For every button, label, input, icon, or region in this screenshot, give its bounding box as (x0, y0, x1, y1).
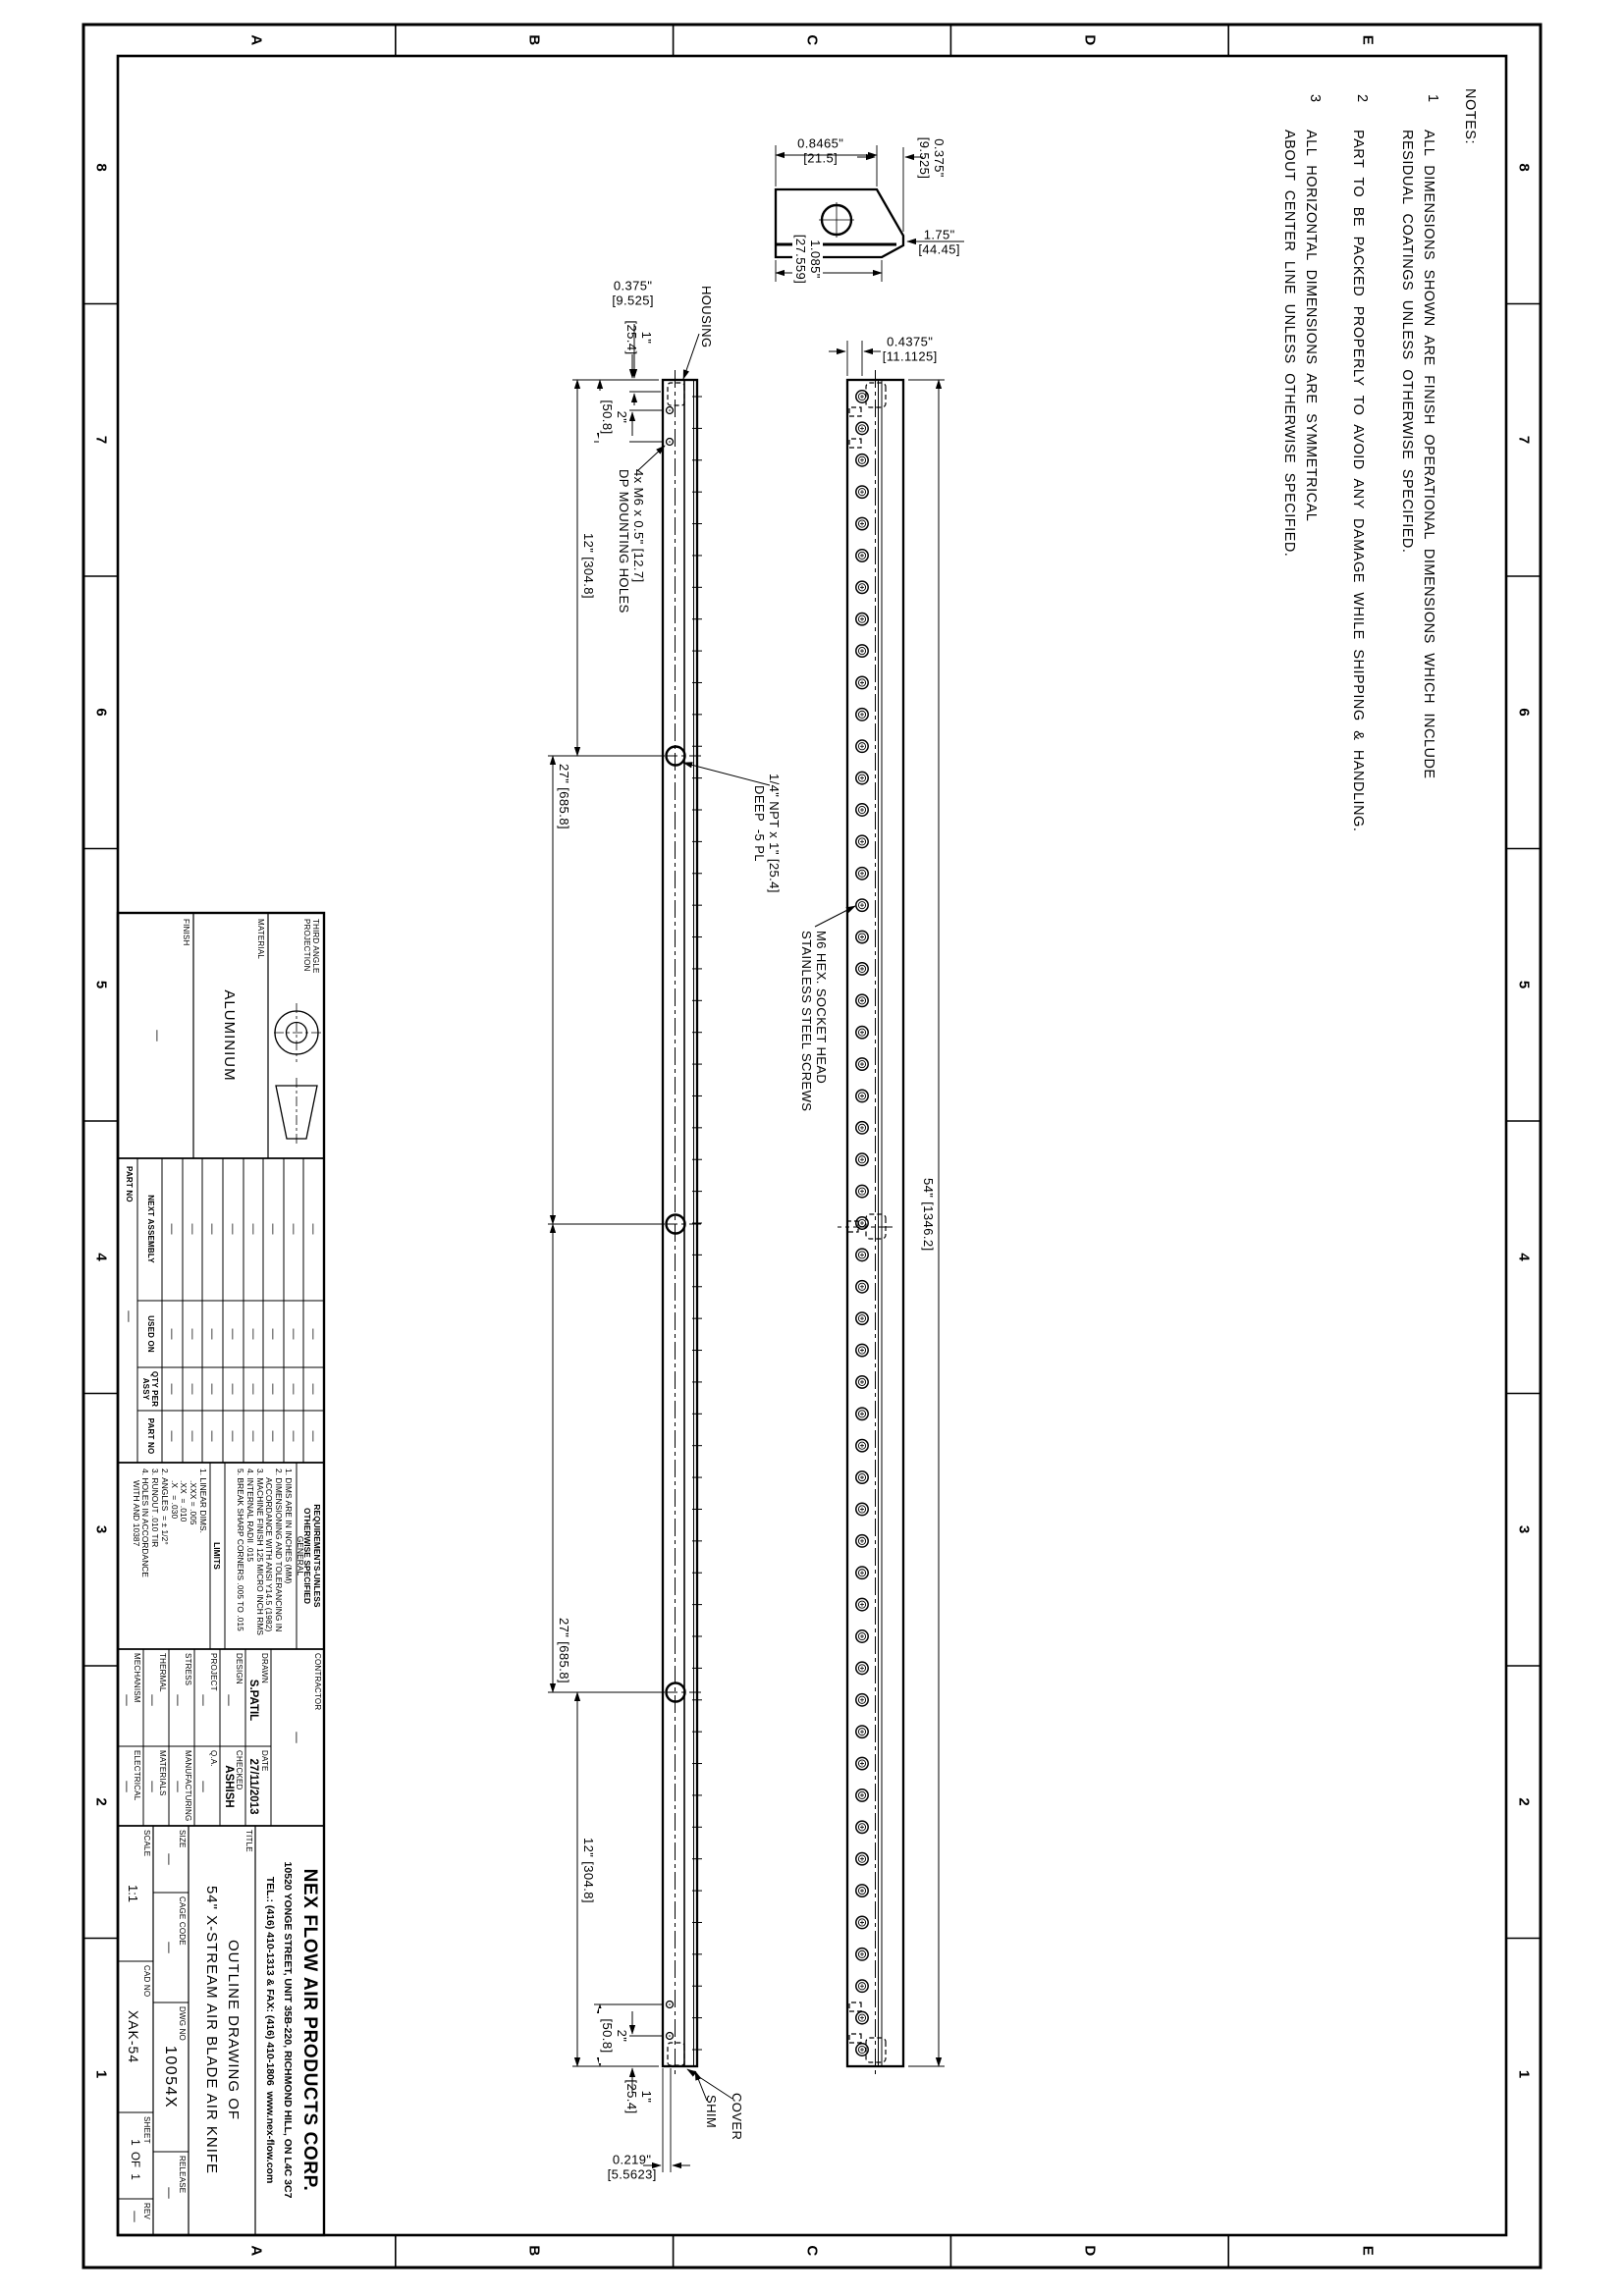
screw (856, 1852, 868, 1864)
screw (856, 1916, 868, 1928)
note-number: 2 (1355, 94, 1370, 103)
application-empty-cell: — (166, 1224, 178, 1235)
electrical-value: — (121, 1781, 133, 1792)
screw (856, 1090, 868, 1101)
design-label: DESIGN (234, 1653, 243, 1684)
landscape-drawing: NOTES: 1 ALL DIMENSIONS SHOWN ARE FINISH… (0, 0, 1624, 2296)
callout-housing: HOUSING (699, 286, 714, 347)
screw (856, 1439, 868, 1451)
application-empty-cell: — (187, 1431, 198, 1442)
date-value: 27/11/2013 (247, 1759, 259, 1815)
dim-hole-offset-1: 1" [25.4] (623, 2073, 654, 2120)
application-empty-cell: — (206, 1384, 218, 1395)
zone-number-bottom: 3 (93, 1525, 110, 1534)
application-empty-cell: — (206, 1224, 218, 1235)
application-empty-cell: — (187, 1329, 198, 1340)
manufacturing-value: — (172, 1781, 184, 1792)
screw (856, 1312, 868, 1324)
screw (856, 899, 868, 911)
callout-mounting-holes: 4x M6 x 0.5" [12.7] DP MOUNTING HOLES (616, 469, 646, 614)
note-number: 1 (1426, 94, 1440, 103)
material-value: ALUMINIUM (221, 989, 238, 1081)
zone-letter-right: C (804, 2245, 821, 2256)
finish-value: — (151, 1030, 163, 1041)
screw (856, 1058, 868, 1070)
screw (856, 1344, 868, 1356)
screw (856, 835, 868, 847)
screw (856, 1185, 868, 1197)
application-row-value: — (123, 1310, 135, 1322)
drawing-title-line1: OUTLINE DRAWING OF (225, 1940, 242, 2120)
side-view (644, 370, 702, 2076)
screw (856, 2011, 868, 2023)
size-label: SIZE (177, 1830, 186, 1848)
mechanism-value: — (121, 1694, 133, 1706)
zone-number-top: 2 (1516, 1797, 1533, 1806)
screw (856, 645, 868, 657)
dwg-no-value: 10054X (161, 2046, 179, 2109)
screw (856, 1408, 868, 1419)
screw (856, 1757, 868, 1769)
screw (856, 1026, 868, 1038)
screw (856, 1694, 868, 1706)
rev-value: — (129, 2211, 140, 2222)
dim-hole-offset-2: 2" [50.8] (599, 391, 629, 444)
dim-detail-body-height: 0.8465" [21.5] (782, 136, 860, 167)
screw (856, 517, 868, 529)
screw (856, 1598, 868, 1610)
screw (856, 931, 868, 942)
screw (856, 1567, 868, 1578)
qa-label: Q.A. (208, 1750, 217, 1767)
thermal-value: — (146, 1694, 158, 1706)
note-text: ALL HORIZONTAL DIMENSIONS ARE SYMMETRICA… (1278, 130, 1322, 557)
application-empty-cell: — (267, 1384, 279, 1395)
application-empty-cell: — (227, 1431, 239, 1442)
application-empty-cell: — (267, 1329, 279, 1340)
application-empty-cell: — (308, 1384, 320, 1395)
zone-number-top: 4 (1516, 1253, 1533, 1261)
application-empty-cell: — (288, 1431, 299, 1442)
zone-number-top: 5 (1516, 981, 1533, 989)
screw (856, 1122, 868, 1134)
zone-number-top: 6 (1516, 708, 1533, 717)
project-label: PROJECT (208, 1653, 217, 1691)
application-empty-cell: — (166, 1329, 178, 1340)
zone-letter-right: E (1359, 2246, 1376, 2257)
screw (856, 613, 868, 624)
application-empty-cell: — (288, 1384, 299, 1395)
drawn-label: DRAWN (259, 1653, 268, 1683)
scale-label: SCALE (141, 1830, 150, 1856)
dim-shim-setback: 0.375" [9.525] (599, 279, 668, 309)
requirements-general-list: 1. DIMS ARE IN INCHES (MM) 2. DIMENSIONI… (235, 1468, 293, 1635)
screw (856, 581, 868, 593)
drawing-title-line2: 54" X-STREAM AIR BLADE AIR KNIFE (203, 1886, 220, 2174)
application-header: PART NO (145, 1412, 154, 1461)
screw (856, 1249, 868, 1260)
application-empty-cell: — (166, 1431, 178, 1442)
dim-detail-tip: 0.375" [9.525] (916, 124, 947, 192)
zone-number-bottom: 4 (93, 1253, 110, 1261)
note-text: PART TO BE PACKED PROPERLY TO AVOID ANY … (1347, 130, 1369, 831)
requirements-limits-list: 1. LINEAR DIMS. .XXX = .005 .XX = .010 .… (131, 1468, 207, 1577)
application-empty-cell: — (247, 1224, 259, 1235)
screw (856, 1503, 868, 1515)
release-value: — (163, 2187, 175, 2199)
thermal-label: THERMAL (157, 1653, 166, 1692)
stress-value: — (172, 1694, 184, 1706)
application-empty-cell: — (206, 1329, 218, 1340)
application-header: NEXT ASSEMBLY (145, 1163, 154, 1295)
drawing-sheet: NOTES: 1 ALL DIMENSIONS SHOWN ARE FINISH… (0, 0, 1624, 2296)
projection-label: THIRD ANGLE PROJECTION (301, 919, 319, 974)
callout-shim: SHIM (704, 2095, 719, 2128)
application-empty-cell: — (187, 1384, 198, 1395)
application-empty-cell: — (288, 1329, 299, 1340)
date-label: DATE (259, 1750, 268, 1772)
finish-label: FINISH (181, 919, 189, 945)
manufacturing-label: MANUFACTURING (183, 1750, 191, 1821)
dim-hole-offset-2: 2" [50.8] (599, 2008, 629, 2063)
stress-label: STRESS (183, 1653, 191, 1685)
application-empty-cell: — (247, 1384, 259, 1395)
dim-detail-overall: 1.75" [44.45] (905, 228, 974, 258)
dim-port-spacing-27: 27" [685.8] (557, 1618, 571, 1683)
notes-heading: NOTES: (1463, 88, 1478, 144)
scale-value: 1:1 (126, 1885, 140, 1902)
screw (856, 804, 868, 816)
application-empty-cell: — (227, 1224, 239, 1235)
company-name: NEX FLOW AIR PRODUCTS CORP. (298, 1869, 320, 2192)
screw (856, 1153, 868, 1165)
application-empty-cell: — (206, 1431, 218, 1442)
sheet-value: 1 OF 1 (129, 2139, 140, 2180)
note-number: 3 (1308, 94, 1323, 103)
screw (856, 740, 868, 752)
dim-hole-offset-1: 1" [25.4] (623, 316, 654, 359)
application-empty-cell: — (227, 1384, 239, 1395)
zone-number-bottom: 2 (93, 1797, 110, 1806)
checked-label: CHECKED (234, 1750, 243, 1790)
callout-cover: COVER (730, 2093, 744, 2140)
mechanism-label: MECHANISM (132, 1653, 140, 1703)
application-empty-cell: — (247, 1329, 259, 1340)
cad-no-value: XAK-54 (126, 2010, 141, 2063)
screw (856, 1535, 868, 1547)
note-text: ALL DIMENSIONS SHOWN ARE FINISH OPERATIO… (1396, 130, 1439, 779)
zone-letter-left: D (1081, 34, 1098, 45)
plan-view (838, 370, 903, 2076)
size-value: — (163, 1853, 175, 1865)
application-empty-cell: — (308, 1329, 320, 1340)
zone-number-bottom: 6 (93, 708, 110, 717)
screw (856, 963, 868, 975)
application-empty-cell: — (308, 1431, 320, 1442)
zone-number-bottom: 8 (93, 163, 110, 172)
screw (856, 1281, 868, 1293)
company-address: 10520 YONGE STREET, UNIT 35B-220, RICHMO… (282, 1862, 294, 2199)
project-value: — (197, 1694, 209, 1706)
screw (856, 994, 868, 1006)
application-empty-cell: — (308, 1224, 320, 1235)
application-header: USED ON (145, 1303, 154, 1365)
callout-screws: M6 HEX. SOCKET HEAD STAINLESS STEEL SCRE… (798, 931, 829, 1111)
application-empty-cell: — (187, 1224, 198, 1235)
screw (856, 868, 868, 880)
screw (856, 676, 868, 688)
screw (856, 1821, 868, 1833)
application-empty-cell: — (267, 1431, 279, 1442)
release-label: RELEASE (177, 2156, 186, 2193)
application-empty-cell: — (227, 1329, 239, 1340)
screw (856, 1980, 868, 1992)
dim-shim-thickness: 0.219" [5.5623] (595, 2153, 670, 2183)
dim-port-spacing-12: 12" [304.8] (581, 533, 596, 599)
application-empty-cell: — (288, 1224, 299, 1235)
requirements-general-heading: GENERAL (295, 1467, 304, 1645)
screw (856, 550, 868, 561)
zone-number-top: 3 (1516, 1525, 1533, 1534)
design-value: — (223, 1694, 235, 1706)
dimension-lines (548, 145, 964, 2172)
zone-letter-left: A (248, 34, 265, 45)
screw (856, 454, 868, 466)
screw (856, 1789, 868, 1801)
screw (856, 1885, 868, 1896)
company-contact: TEL.: (416) 410-1313 & FAX: (416) 410-18… (264, 1877, 276, 2184)
dwg-no-label: DWG NO (177, 2006, 186, 2041)
callout-npt-ports: 1/4" NPT x 1" [25.4] DEEP -5 PL (751, 774, 782, 893)
zone-letter-left: B (526, 34, 543, 45)
screw (856, 1376, 868, 1388)
contractor-label: CONTRACTOR (312, 1653, 321, 1710)
zone-number-top: 7 (1516, 436, 1533, 445)
contractor-value: — (291, 1732, 302, 1743)
materials-value: — (146, 1781, 158, 1792)
checked-value: ASHISH (223, 1765, 235, 1807)
electrical-label: ELECTRICAL (132, 1750, 140, 1800)
dim-overall-length: 54" [1346.2] (921, 1176, 936, 1253)
drawn-value: S.PATIL (247, 1680, 259, 1721)
zone-number-top: 8 (1516, 163, 1533, 172)
screw (856, 1662, 868, 1674)
screw (856, 1471, 868, 1483)
application-row-label: PART NO (124, 1166, 133, 1202)
zone-number-top: 1 (1516, 2070, 1533, 2079)
screw (856, 709, 868, 721)
title-label: TITLE (244, 1830, 252, 1852)
zone-number-bottom: 7 (93, 436, 110, 445)
qa-value: — (197, 1781, 209, 1792)
requirements-limits-heading: LIMITS (211, 1467, 221, 1645)
screw (856, 422, 868, 434)
zone-number-bottom: 5 (93, 981, 110, 989)
drawing-linework (0, 0, 1624, 2296)
dim-edge-to-screws: 0.4375" [11.1125] (873, 335, 947, 365)
application-empty-cell: — (247, 1431, 259, 1442)
application-empty-cell: — (166, 1384, 178, 1395)
cad-no-label: CAD NO (141, 1965, 150, 1997)
screw (856, 1630, 868, 1642)
hidden-features (847, 383, 886, 2062)
zone-letter-left: E (1359, 35, 1376, 46)
materials-label: MATERIALS (157, 1750, 166, 1796)
cage-code-value: — (163, 1942, 175, 1953)
zone-number-bottom: 1 (93, 2070, 110, 2079)
zone-letter-right: A (248, 2245, 265, 2256)
dim-port-spacing-27: 27" [685.8] (557, 764, 571, 829)
application-header: QTY PER ASSY (140, 1368, 158, 1410)
sheet-label: SHEET (141, 2116, 150, 2144)
screw (856, 1726, 868, 1737)
screw (856, 1949, 868, 1960)
application-empty-cell: — (267, 1224, 279, 1235)
screw (856, 486, 868, 498)
material-label: MATERIAL (255, 919, 264, 959)
zone-letter-right: B (526, 2245, 543, 2256)
screw (856, 772, 868, 783)
dim-port-spacing-12: 12" [304.8] (581, 1838, 596, 1903)
cage-code-label: CAGE CODE (177, 1896, 186, 1946)
zone-letter-right: D (1081, 2245, 1098, 2256)
zone-letter-left: C (804, 34, 821, 45)
rev-label: REV (141, 2203, 150, 2219)
dim-detail-width: 1.085" [27.559] (792, 228, 823, 291)
